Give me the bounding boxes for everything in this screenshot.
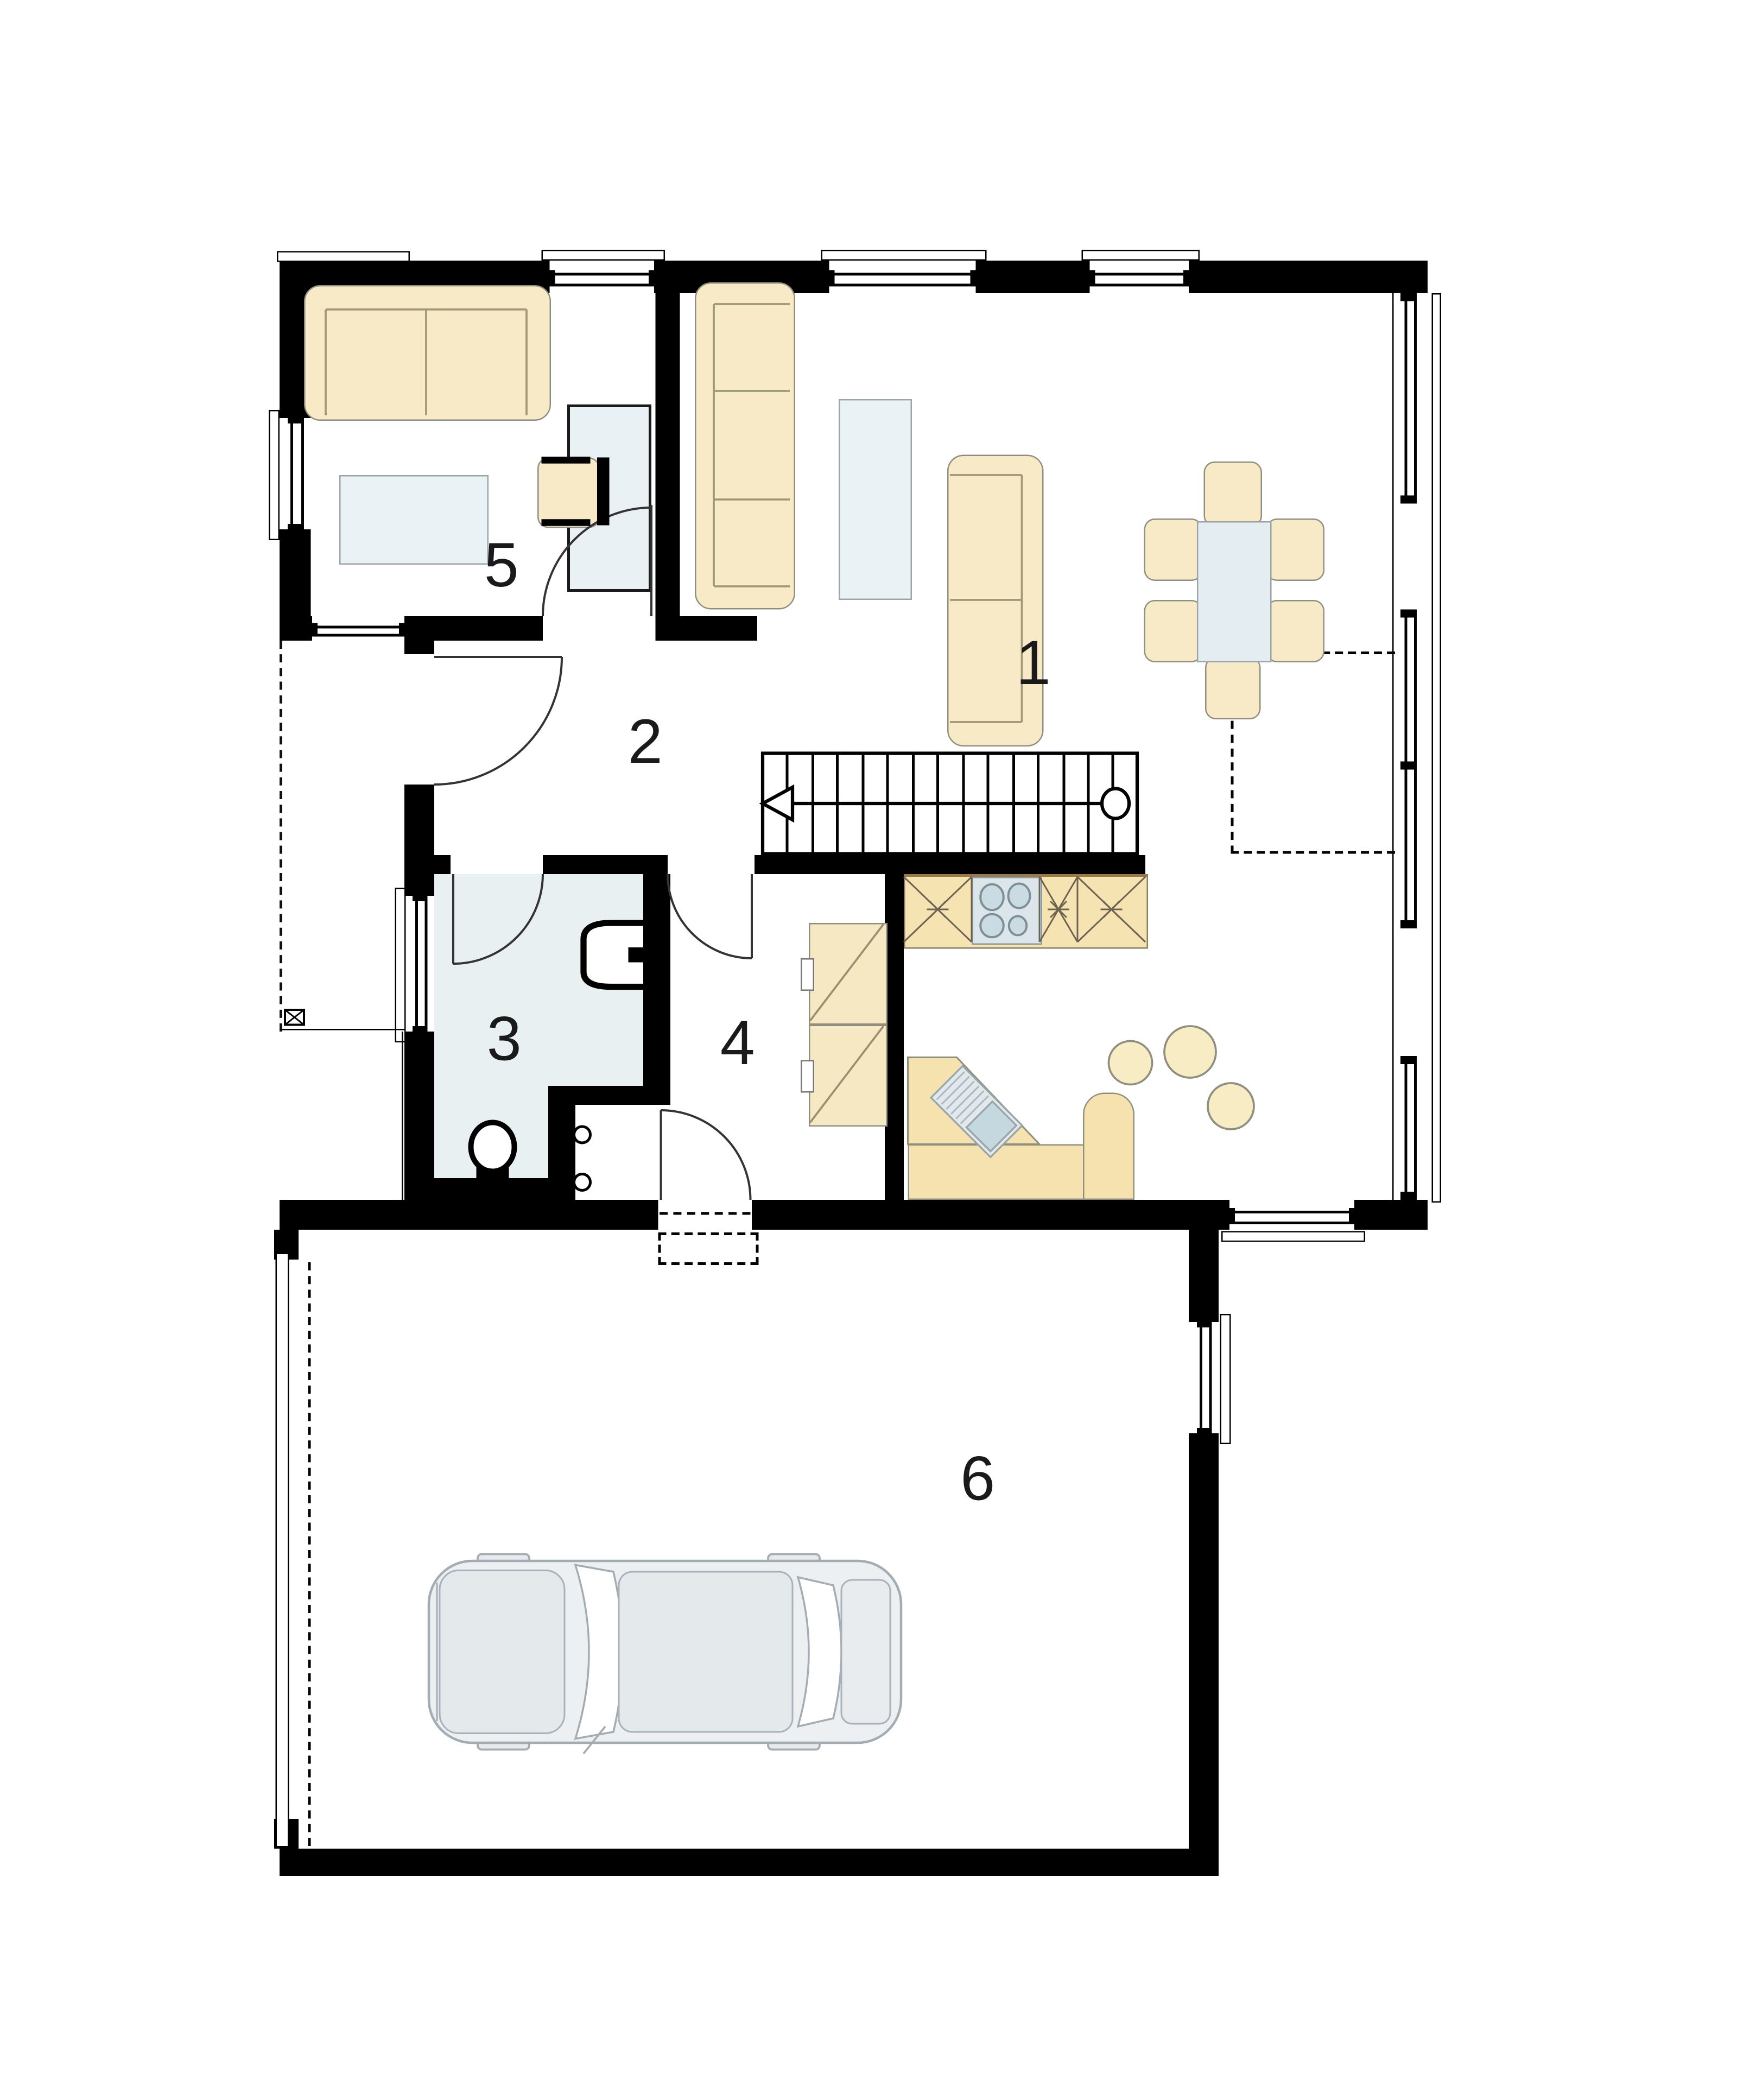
staircase — [763, 754, 1137, 854]
toilet — [471, 1123, 515, 1185]
washbasin — [584, 923, 643, 987]
linework-layer — [0, 0, 1737, 2100]
door-arc — [668, 874, 752, 958]
room-label-1: 1 — [1016, 626, 1052, 699]
room-label-3: 3 — [487, 1002, 523, 1075]
door-arc — [453, 874, 543, 964]
sofa-cushion-lines — [326, 304, 1022, 722]
room-label-4: 4 — [720, 1006, 756, 1079]
bar-stools — [1109, 1026, 1254, 1129]
room-label-5: 5 — [484, 528, 520, 602]
door-arc — [661, 1110, 751, 1200]
room-label-2: 2 — [628, 705, 664, 778]
wardrobe-diagonals — [810, 925, 884, 1123]
floor-plan-page: 1 2 3 4 5 6 — [0, 0, 1737, 2100]
car — [429, 1554, 901, 1754]
car-roof — [619, 1572, 793, 1732]
plumbing-hookups — [574, 1127, 591, 1191]
cooktop-burners — [980, 884, 1030, 938]
drain-symbol — [285, 1010, 304, 1025]
car-hood — [440, 1571, 565, 1734]
door-arc — [434, 657, 562, 785]
car-trunk — [841, 1580, 890, 1724]
stair-newel — [1102, 789, 1129, 819]
floor-plan: 1 2 3 4 5 6 — [0, 0, 1737, 2100]
room-label-6: 6 — [960, 1441, 996, 1515]
desk-chair-marks — [542, 458, 610, 526]
